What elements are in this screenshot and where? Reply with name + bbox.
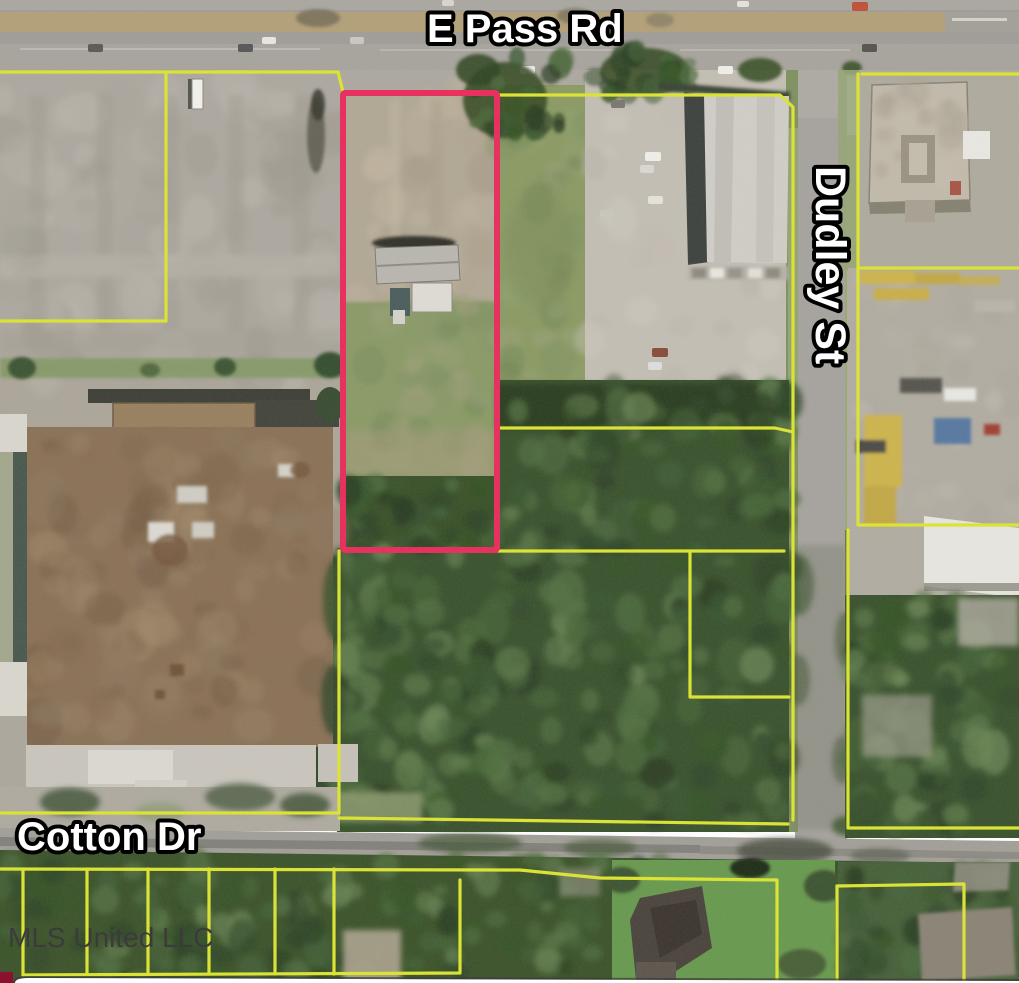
svg-text:Cotton Dr: Cotton Dr: [17, 815, 201, 859]
svg-text:MLS United LLC: MLS United LLC: [8, 922, 213, 953]
svg-text:Dudley St: Dudley St: [806, 166, 854, 364]
svg-text:E Pass Rd: E Pass Rd: [427, 7, 623, 51]
